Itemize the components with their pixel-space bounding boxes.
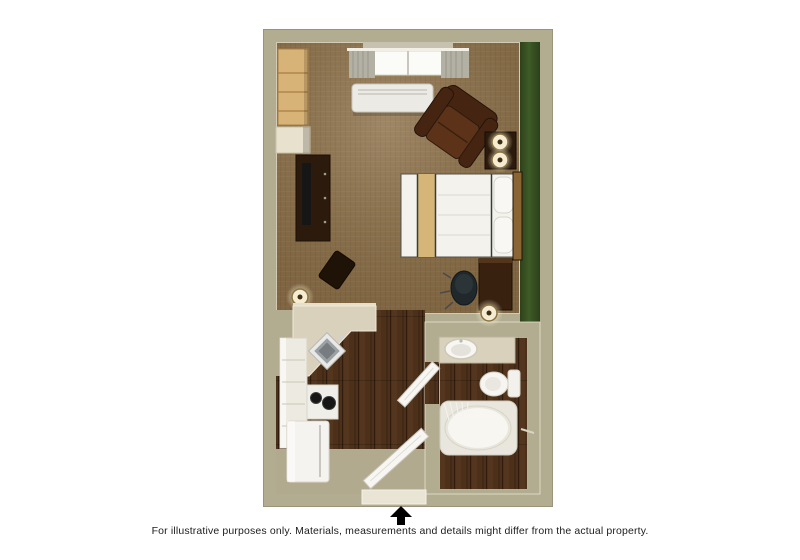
window-with-curtains [347, 42, 469, 78]
refrigerator [287, 421, 329, 482]
entrance-arrow-icon [389, 506, 413, 525]
bed-runner [418, 174, 435, 257]
stove-cooktop [307, 385, 338, 419]
tv-screen [302, 163, 311, 225]
desk-lamp [475, 299, 503, 327]
curtain-right [441, 51, 469, 78]
pillow [494, 177, 513, 213]
vanity-sink [439, 337, 515, 363]
floor-plan-page: For illustrative purposes only. Material… [0, 0, 800, 560]
bed [401, 172, 522, 260]
curtain-left [349, 51, 375, 78]
closet-shelving [278, 49, 308, 125]
storage-shelf [276, 127, 310, 153]
floor-plan-image [263, 29, 553, 507]
headboard [513, 172, 522, 260]
table-lamp [487, 147, 513, 173]
disclaimer-text: For illustrative purposes only. Material… [152, 525, 649, 537]
curtain-rod [347, 48, 469, 51]
tv-console [296, 155, 330, 241]
bathtub [440, 401, 517, 455]
green-accent-wall [520, 42, 540, 322]
pillow [494, 217, 513, 253]
entry-threshold [362, 490, 426, 504]
ptac-ac-unit [352, 84, 433, 116]
floor-plan-canvas [263, 29, 553, 507]
disclaimer-caption: For illustrative purposes only. Material… [0, 524, 800, 538]
toilet [480, 370, 520, 397]
